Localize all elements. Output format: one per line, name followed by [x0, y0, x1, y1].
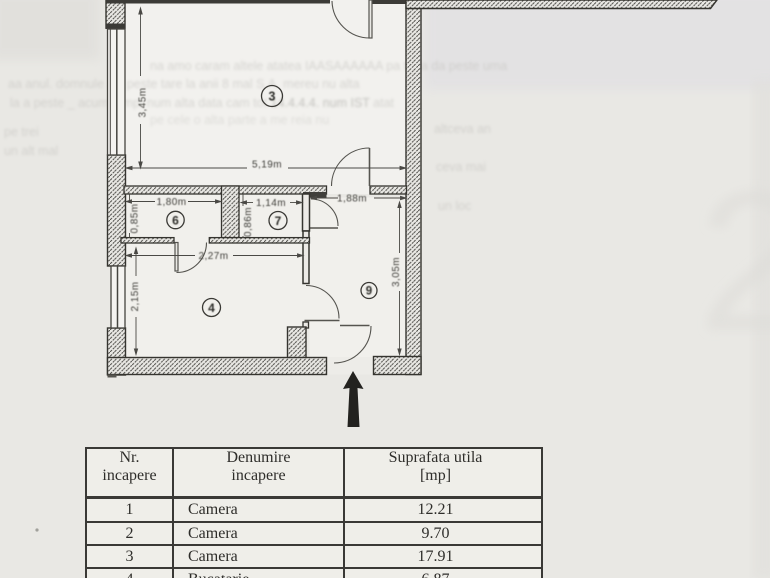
svg-text:9: 9	[366, 286, 372, 298]
svg-text:la a peste _ acum 2 mp. num al: la a peste _ acum 2 mp. num alta data ca…	[10, 96, 395, 110]
svg-text:3,45m: 3,45m	[138, 87, 149, 117]
svg-text:aa anul. domnule azi peste tar: aa anul. domnule azi peste tare la anii …	[8, 77, 360, 91]
svg-text:4: 4	[208, 301, 215, 315]
svg-text:6: 6	[172, 214, 179, 228]
svg-text:1,88m: 1,88m	[337, 194, 367, 205]
svg-text:pe trei: pe trei	[4, 125, 39, 139]
svg-text:un loc: un loc	[438, 199, 471, 213]
svg-text:1,14m: 1,14m	[256, 198, 286, 209]
svg-text:0,85m: 0,85m	[130, 203, 141, 233]
svg-text:pe cele o alta parte a me reia: pe cele o alta parte a me reia nu	[150, 113, 329, 127]
svg-text:2,15m: 2,15m	[130, 281, 141, 311]
svg-text:ceva mai: ceva mai	[436, 160, 486, 174]
svg-text:0,86m: 0,86m	[243, 207, 254, 237]
svg-text:5,19m: 5,19m	[252, 160, 282, 171]
svg-text:3: 3	[269, 90, 276, 104]
svg-text:na amo caram altele atatea IAA: na amo caram altele atatea IAASAAAAAA pa…	[150, 59, 507, 73]
svg-text:2: 2	[698, 150, 770, 373]
svg-text:altceva an: altceva an	[434, 122, 491, 136]
svg-text:1,80m: 1,80m	[156, 197, 186, 208]
svg-text:7: 7	[275, 214, 282, 228]
svg-text:2,27m: 2,27m	[198, 251, 228, 262]
svg-text:un alt mal: un alt mal	[4, 144, 58, 158]
svg-text:3,05m: 3,05m	[391, 257, 402, 287]
